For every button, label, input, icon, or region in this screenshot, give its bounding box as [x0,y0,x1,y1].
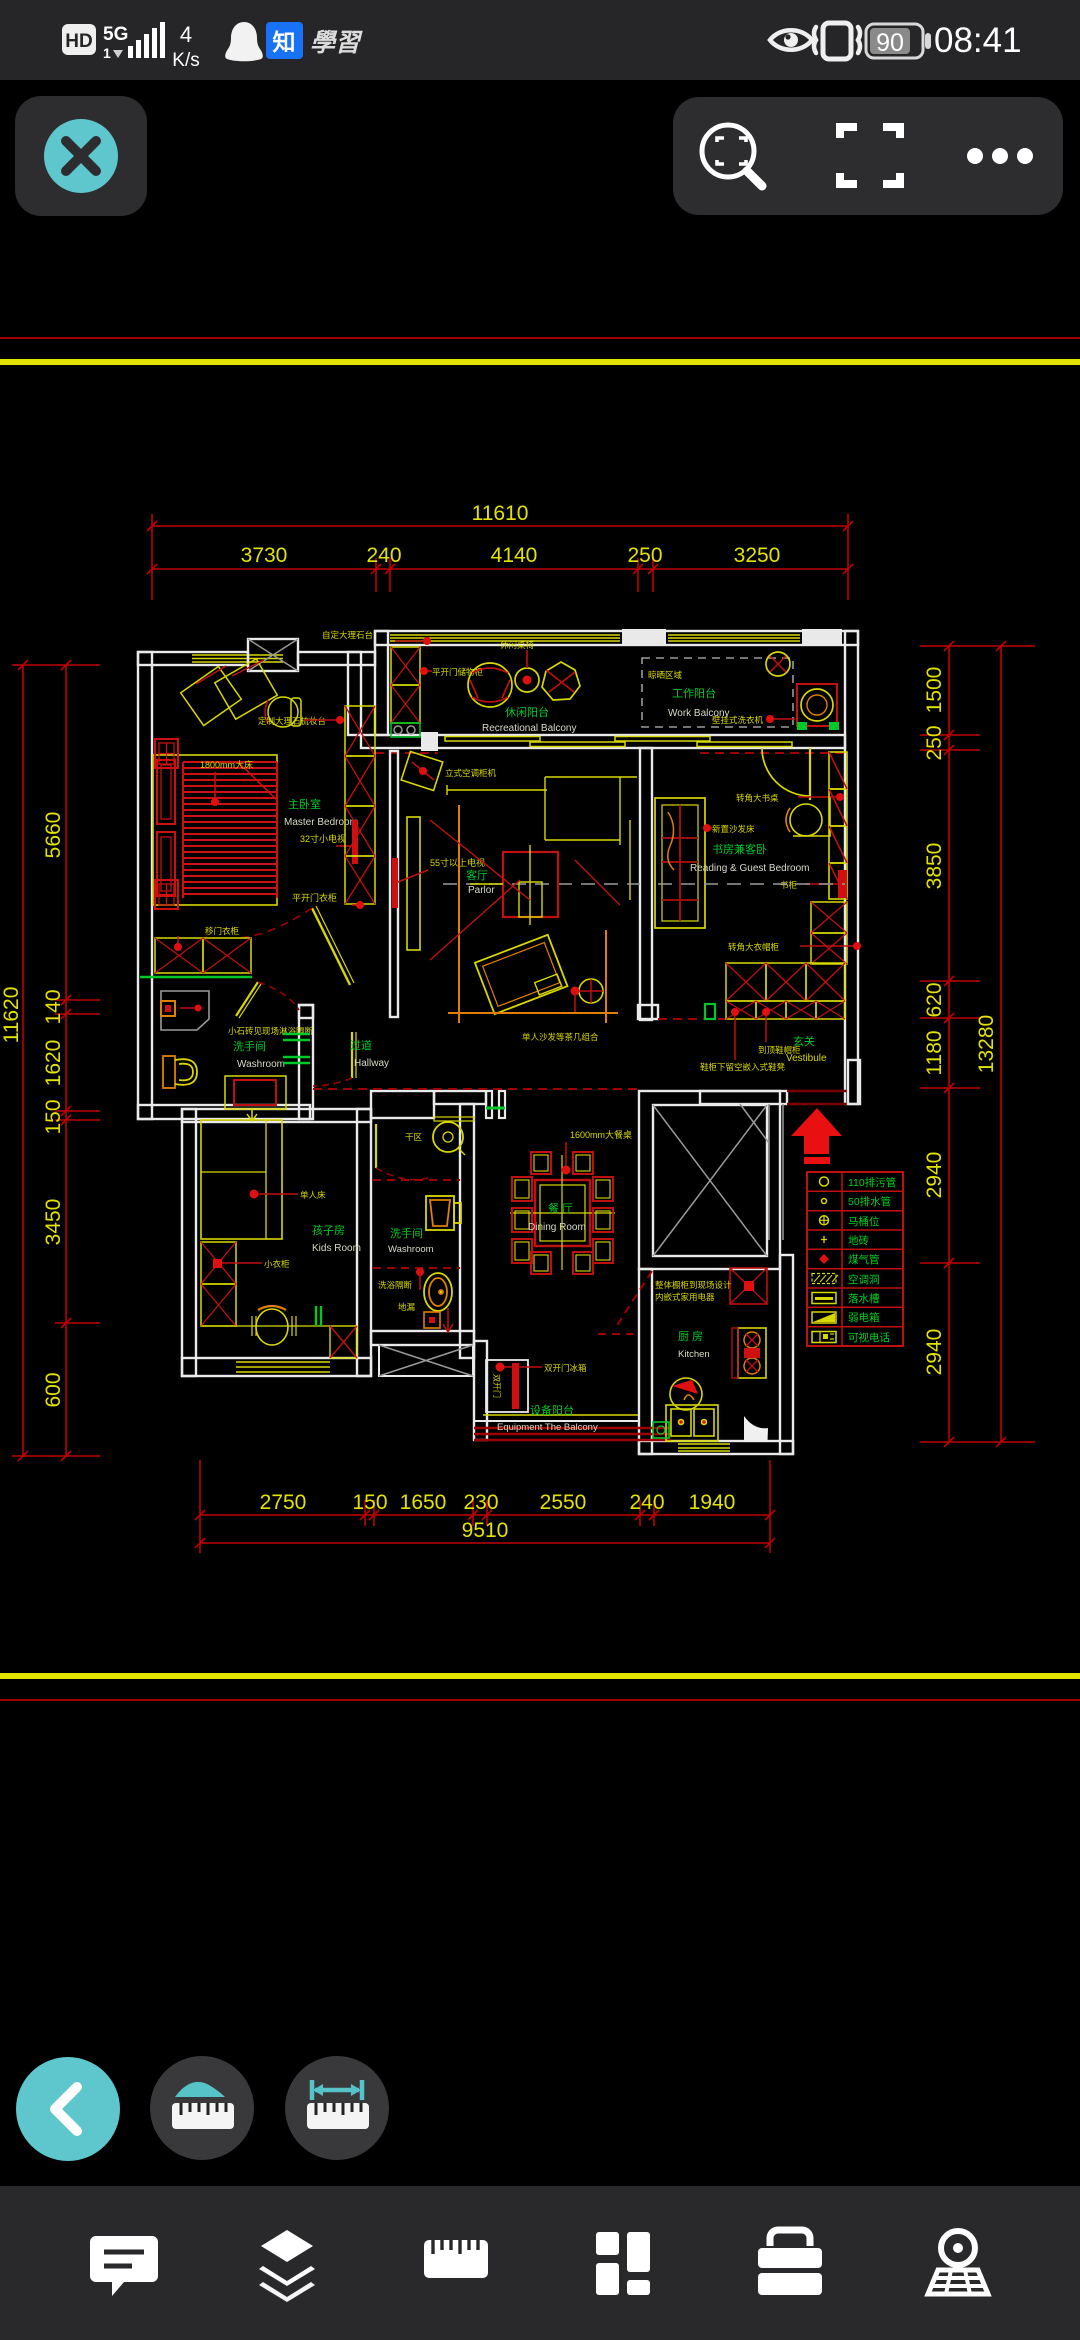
svg-text:鞋柜下留空嵌入式鞋凳: 鞋柜下留空嵌入式鞋凳 [700,1062,786,1072]
svg-text:2750: 2750 [260,1491,307,1514]
svg-text:32寸小电视: 32寸小电视 [300,833,346,844]
svg-text:整体橱柜到现场设计: 整体橱柜到现场设计 [655,1280,732,1290]
svg-text:Equipment The Balcony: Equipment The Balcony [497,1422,598,1433]
svg-text:600: 600 [42,1372,65,1407]
svg-text:3250: 3250 [734,544,781,567]
svg-text:可视电话: 可视电话 [848,1331,890,1344]
svg-text:内嵌式家用电器: 内嵌式家用电器 [655,1292,715,1302]
svg-text:150: 150 [352,1491,387,1514]
svg-text:过道: 过道 [350,1038,372,1052]
svg-text:Parlor: Parlor [468,885,495,896]
svg-text:餐 厅: 餐 厅 [548,1201,573,1215]
svg-text:3730: 3730 [241,544,288,567]
svg-text:250: 250 [923,725,946,760]
svg-text:2940: 2940 [923,1152,946,1199]
svg-text:50排水管: 50排水管 [848,1195,891,1208]
svg-text:2550: 2550 [540,1491,587,1514]
svg-text:移门衣柜: 移门衣柜 [205,926,240,936]
svg-text:洗手间: 洗手间 [233,1039,266,1053]
svg-text:1800mm大床: 1800mm大床 [200,759,253,770]
svg-text:孩子房: 孩子房 [312,1224,345,1237]
svg-text:厨 房: 厨 房 [678,1330,703,1343]
svg-text:双开门: 双开门 [492,1374,502,1398]
svg-text:1500: 1500 [923,667,946,714]
svg-text:Master Bedroom: Master Bedroom [284,817,358,828]
svg-text:1620: 1620 [42,1040,65,1087]
svg-text:小衣柜: 小衣柜 [264,1259,290,1269]
svg-text:干区: 干区 [405,1132,423,1142]
svg-text:自定大理石台: 自定大理石台 [322,630,373,640]
svg-text:地砖: 地砖 [848,1234,869,1247]
svg-text:1180: 1180 [923,1030,946,1075]
svg-text:240: 240 [629,1491,664,1514]
svg-text:地漏: 地漏 [398,1302,416,1312]
svg-text:9510: 9510 [462,1519,509,1542]
svg-text:煤气管: 煤气管 [848,1253,880,1266]
svg-text:晾晒区域: 晾晒区域 [648,670,683,680]
svg-text:1940: 1940 [689,1491,736,1514]
svg-text:洗浴隔断: 洗浴隔断 [378,1280,413,1290]
svg-text:双开门冰箱: 双开门冰箱 [544,1363,587,1373]
svg-text:客厅: 客厅 [466,868,488,882]
svg-text:Kitchen: Kitchen [678,1349,710,1360]
svg-text:5660: 5660 [42,812,65,859]
svg-text:Hallway: Hallway [354,1058,389,1069]
svg-text:单人沙发等茶几组合: 单人沙发等茶几组合 [522,1032,599,1042]
svg-text:到顶鞋帽柜: 到顶鞋帽柜 [758,1045,801,1055]
svg-text:定制大理石梳妆台: 定制大理石梳妆台 [258,716,326,726]
svg-text:2940: 2940 [923,1329,946,1376]
svg-text:单人床: 单人床 [300,1190,326,1200]
svg-text:转角大书桌: 转角大书桌 [736,793,779,803]
svg-text:1650: 1650 [400,1491,447,1514]
svg-text:Washroom: Washroom [237,1059,285,1070]
svg-text:洗手间: 洗手间 [390,1226,423,1240]
svg-text:主卧室: 主卧室 [288,797,321,811]
svg-text:Dining Room: Dining Room [528,1222,586,1233]
svg-text:空调洞: 空调洞 [848,1273,880,1286]
svg-text:工作阳台: 工作阳台 [672,686,716,700]
svg-text:弱电箱: 弱电箱 [848,1311,880,1324]
svg-text:140: 140 [42,989,65,1024]
svg-text:11610: 11610 [472,502,529,525]
svg-text:Reading & Guest Bedroom: Reading & Guest Bedroom [690,863,810,874]
svg-text:休闲阳台: 休闲阳台 [505,705,549,719]
svg-text:110排污管: 110排污管 [848,1176,896,1189]
svg-text:壁挂式洗衣机: 壁挂式洗衣机 [712,715,764,725]
svg-text:13280: 13280 [975,1015,998,1073]
svg-text:3850: 3850 [923,843,946,890]
svg-text:立式空调柜机: 立式空调柜机 [445,768,497,778]
svg-text:250: 250 [627,544,662,567]
svg-text:落水槽: 落水槽 [848,1293,880,1305]
svg-text:240: 240 [366,544,401,567]
svg-text:Washroom: Washroom [388,1244,434,1255]
svg-text:平开门衣柜: 平开门衣柜 [292,892,337,903]
svg-text:新置沙发床: 新置沙发床 [712,824,755,834]
svg-text:11620: 11620 [0,987,23,1044]
svg-text:转角大衣帽柜: 转角大衣帽柜 [728,942,780,952]
svg-text:620: 620 [923,982,946,1017]
svg-text:休闲桌椅: 休闲桌椅 [500,640,535,650]
svg-text:书柜: 书柜 [780,880,798,890]
svg-text:设备阳台: 设备阳台 [530,1403,574,1417]
svg-text:1600mm大餐桌: 1600mm大餐桌 [570,1129,632,1140]
svg-text:4140: 4140 [491,544,538,567]
svg-text:3450: 3450 [42,1199,65,1246]
svg-text:150: 150 [42,1099,65,1134]
svg-text:Recreational Balcony: Recreational Balcony [482,723,577,734]
svg-text:Kids Room: Kids Room [312,1243,361,1254]
svg-text:马桶位: 马桶位 [848,1215,880,1228]
svg-text:书房兼客卧: 书房兼客卧 [712,842,767,856]
svg-text:55寸以上电视: 55寸以上电视 [430,857,485,868]
svg-text:230: 230 [463,1491,498,1514]
